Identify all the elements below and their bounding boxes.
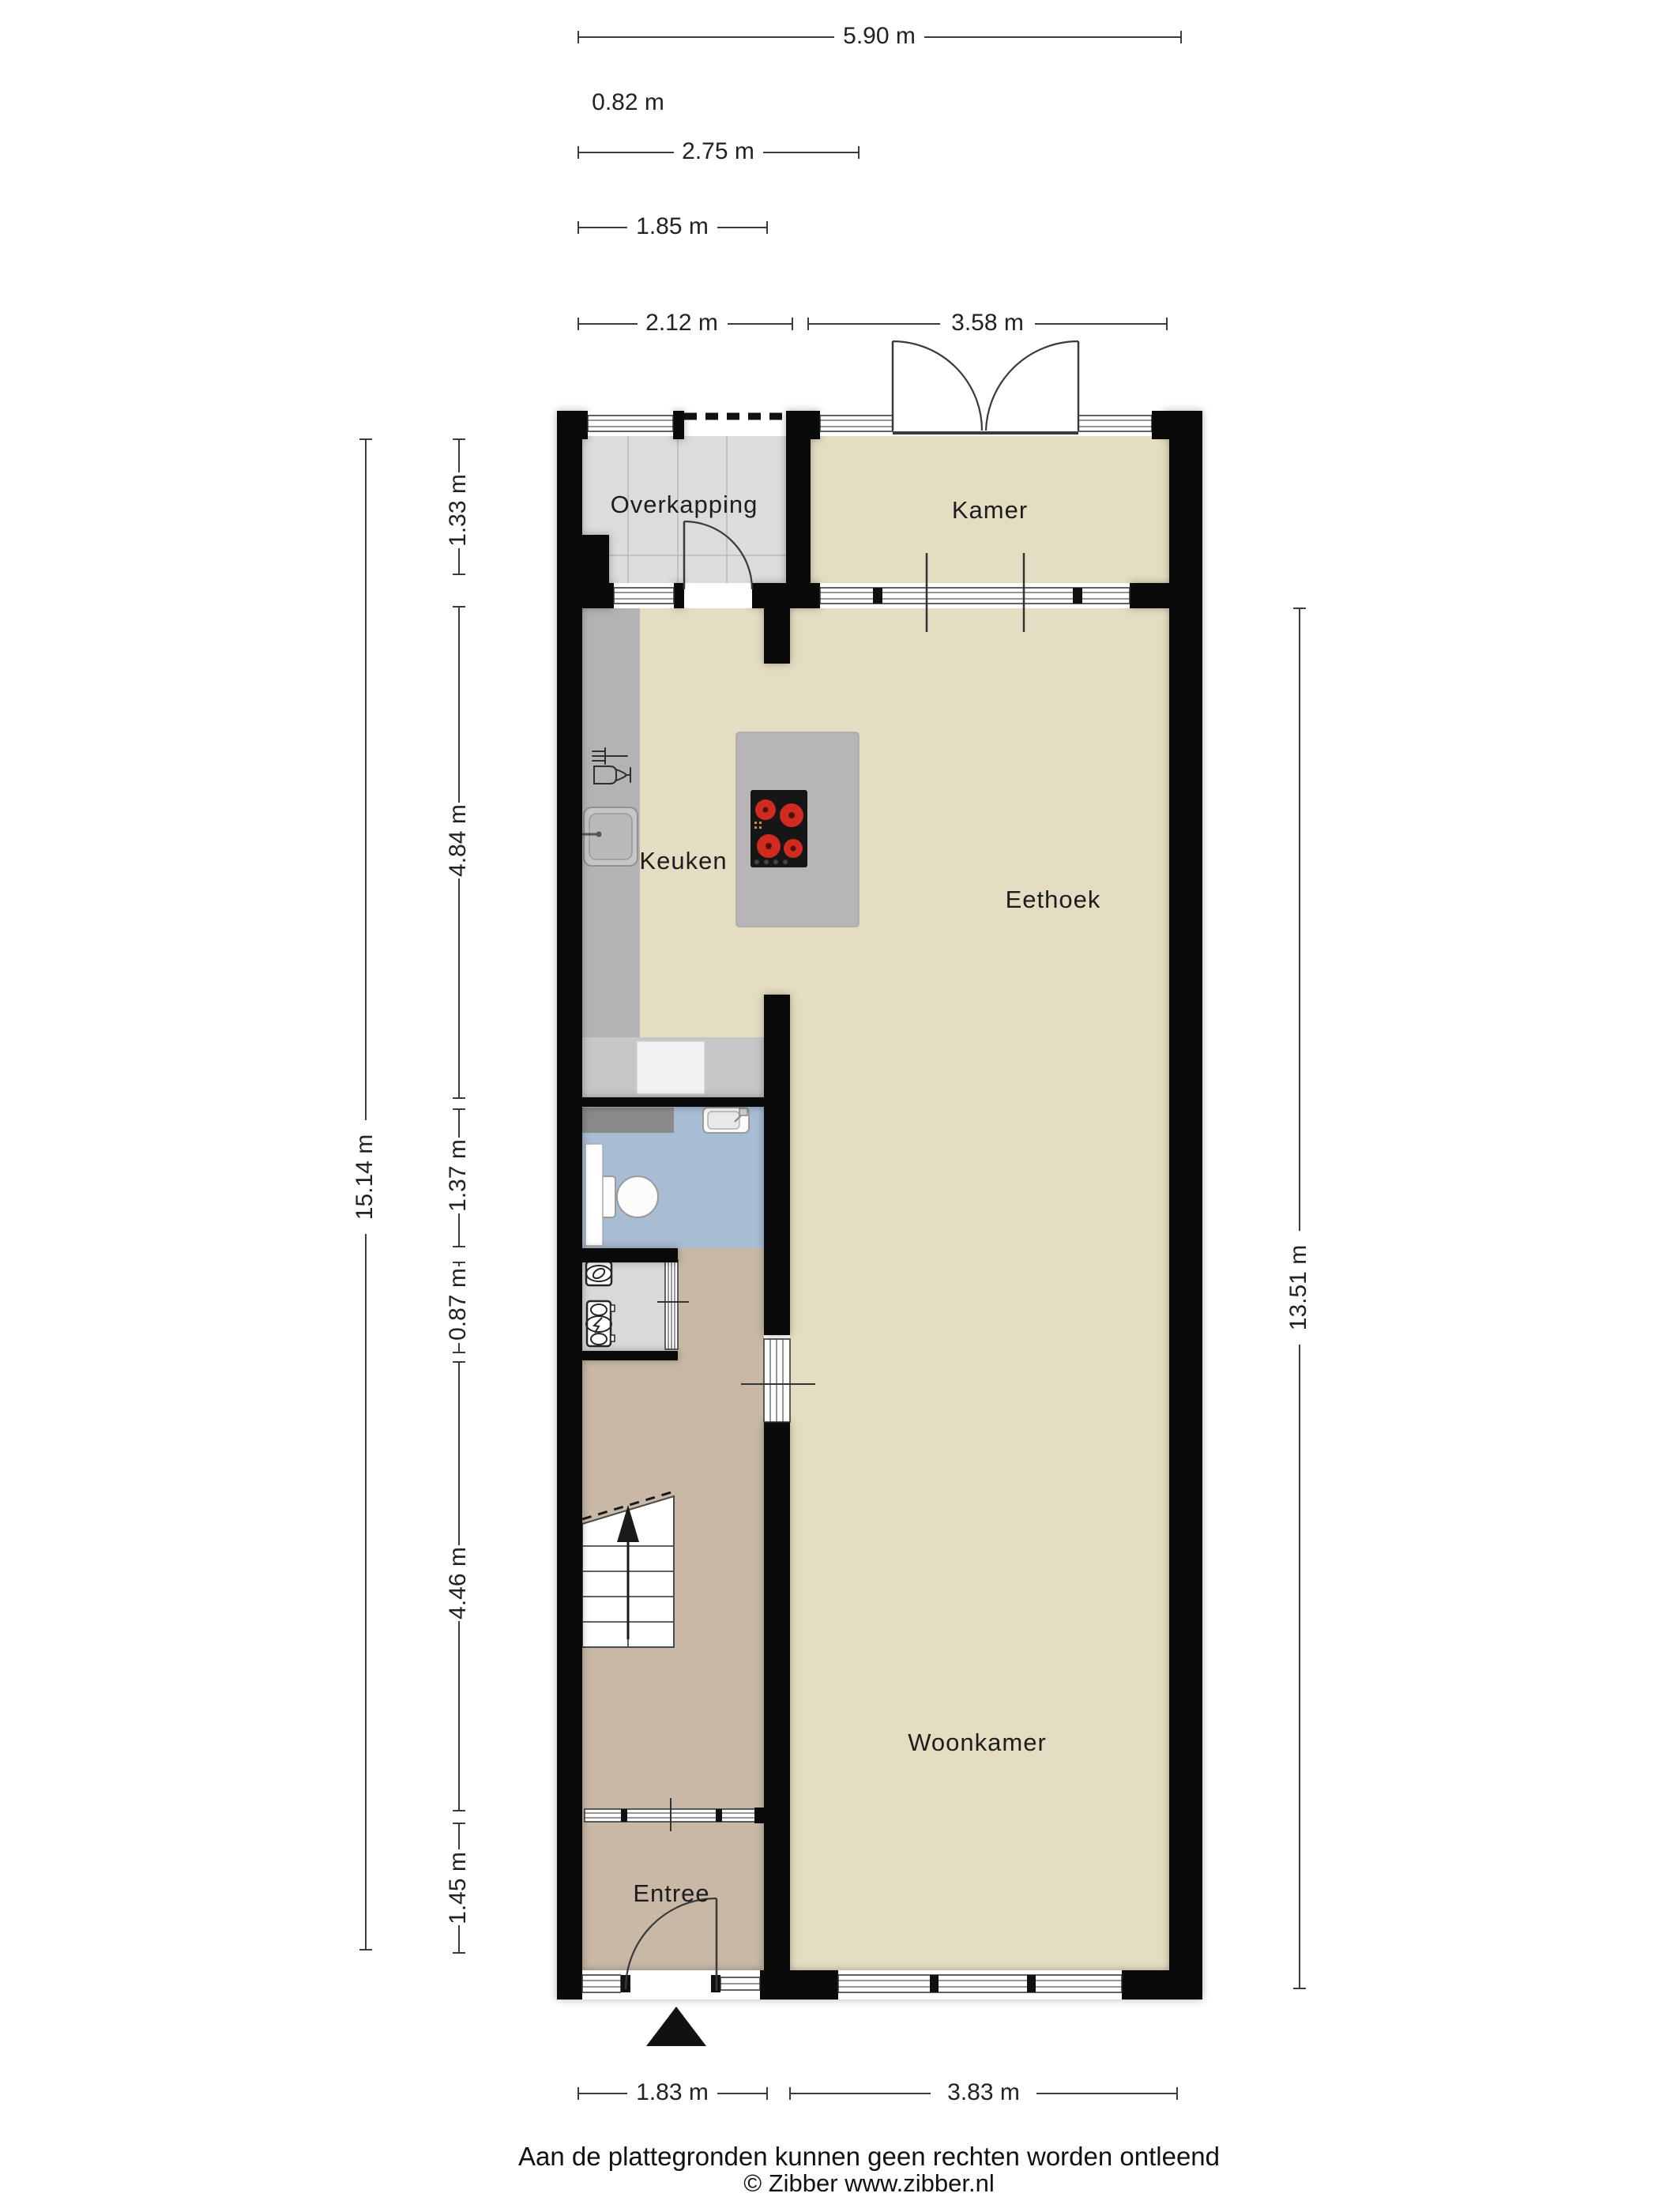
wall-right bbox=[1169, 411, 1202, 1999]
dim-overkapping-depth: 1.33 m bbox=[445, 474, 471, 547]
dim-kamer-width: 3.58 m bbox=[951, 310, 1024, 336]
room-label-entree: Entree bbox=[633, 1879, 709, 1907]
toilet-door-leaf bbox=[585, 1144, 603, 1246]
dim-top-overall: 5.90 m bbox=[843, 23, 916, 49]
dim-kitchen-depth: 4.84 m bbox=[445, 804, 471, 877]
wc-sink-icon bbox=[703, 1108, 749, 1133]
boiler-icon bbox=[586, 1301, 615, 1346]
hall-entree-floor bbox=[582, 1360, 764, 1970]
wall-toilet-top bbox=[557, 1097, 790, 1107]
footer-copyright: © Zibber www.zibber.nl bbox=[743, 2169, 994, 2197]
dim-woonkamer-width: 3.83 m bbox=[947, 2079, 1020, 2105]
wall-toilet-bottom bbox=[557, 1248, 678, 1262]
footer: Aan de plattegronden kunnen geen rechten… bbox=[518, 2142, 1220, 2197]
kitchen-sink-icon bbox=[580, 807, 638, 866]
room-label-keuken: Keuken bbox=[639, 847, 727, 875]
dim-hall-depth: 4.46 m bbox=[445, 1547, 471, 1619]
washing-machine-icon bbox=[586, 1262, 611, 1285]
footer-disclaimer: Aan de plattegronden kunnen geen rechten… bbox=[518, 2142, 1220, 2171]
wall-utility-bottom bbox=[557, 1351, 678, 1360]
dim-top-small: 1.85 m bbox=[636, 213, 709, 239]
wall-middle-lower bbox=[764, 1422, 790, 1970]
dim-left-overall: 15.14 m bbox=[352, 1134, 378, 1220]
dim-top-mid: 2.75 m bbox=[682, 138, 754, 164]
floor-plan-svg: Overkapping Kamer Keuken Eethoek Woonkam… bbox=[0, 0, 1659, 2212]
toilet-icon bbox=[601, 1176, 658, 1217]
wall-middle-upper bbox=[764, 995, 790, 1335]
entrance-door-gap bbox=[621, 1970, 720, 1999]
dim-top-recess: 0.82 m bbox=[592, 89, 664, 115]
dim-toilet-depth: 1.37 m bbox=[445, 1139, 471, 1212]
hall-floor-upper bbox=[678, 1248, 764, 1360]
entrance-arrow-icon bbox=[646, 2007, 706, 2046]
wall-left bbox=[557, 411, 582, 1999]
floors bbox=[582, 436, 1169, 1970]
room-label-overkapping: Overkapping bbox=[611, 491, 758, 518]
cooktop-icon bbox=[750, 790, 807, 867]
room-label-eethoek: Eethoek bbox=[1006, 886, 1101, 913]
dim-entree-width: 1.83 m bbox=[636, 2079, 709, 2105]
dark-cabinet bbox=[582, 1108, 674, 1133]
room-label-kamer: Kamer bbox=[952, 496, 1028, 524]
wall-stub-eethoek bbox=[764, 608, 790, 664]
dim-utility-depth: 0.87 m bbox=[445, 1268, 471, 1341]
microwave-cabinet bbox=[637, 1041, 705, 1094]
dim-overkapping-width: 2.12 m bbox=[645, 310, 718, 336]
room-label-woonkamer: Woonkamer bbox=[908, 1729, 1047, 1756]
wall-kamer-left bbox=[786, 436, 811, 583]
dim-living-depth: 13.51 m bbox=[1285, 1245, 1311, 1330]
dim-entree-depth: 1.45 m bbox=[445, 1852, 471, 1924]
